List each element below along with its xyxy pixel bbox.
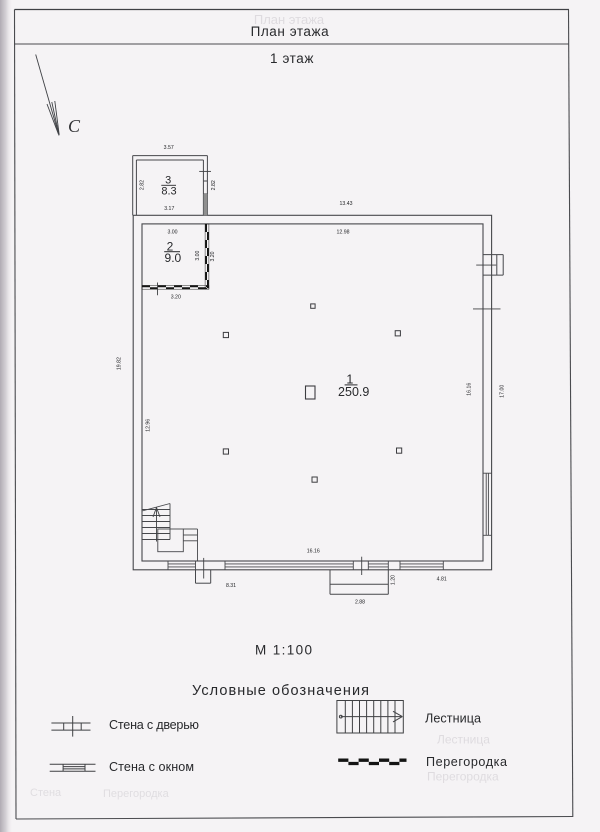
svg-text:Стена: Стена: [30, 787, 62, 799]
svg-text:2.88: 2.88: [355, 600, 365, 606]
svg-text:3.20: 3.20: [210, 251, 216, 261]
svg-text:Стена с окном: Стена с окном: [109, 760, 194, 774]
svg-text:Лестница: Лестница: [425, 711, 481, 725]
svg-text:250.9: 250.9: [338, 385, 369, 399]
svg-text:8.3: 8.3: [161, 186, 176, 198]
svg-text:9.0: 9.0: [165, 251, 182, 265]
svg-text:1 этаж: 1 этаж: [270, 51, 314, 66]
svg-text:Перегородка: Перегородка: [426, 755, 507, 769]
svg-text:3.00: 3.00: [167, 230, 177, 236]
svg-text:17.00: 17.00: [499, 385, 505, 398]
svg-text:3.20: 3.20: [171, 295, 181, 301]
svg-text:2.82: 2.82: [140, 180, 146, 190]
svg-text:3.17: 3.17: [164, 206, 174, 212]
svg-text:12.96: 12.96: [146, 419, 152, 432]
svg-text:Условные обозначения: Условные обозначения: [192, 683, 369, 699]
svg-text:3.57: 3.57: [164, 145, 174, 151]
svg-text:8.31: 8.31: [226, 583, 236, 589]
svg-text:16.16: 16.16: [307, 549, 320, 555]
svg-text:13.43: 13.43: [340, 201, 353, 207]
svg-text:Перегородка: Перегородка: [103, 788, 170, 800]
svg-text:С: С: [68, 116, 81, 136]
svg-text:1.20: 1.20: [390, 575, 396, 585]
svg-text:19.82: 19.82: [117, 357, 123, 370]
svg-text:4.81: 4.81: [437, 576, 447, 582]
svg-text:3.00: 3.00: [195, 250, 201, 260]
svg-text:12.98: 12.98: [337, 229, 350, 235]
svg-text:Перегородка: Перегородка: [427, 770, 499, 784]
svg-text:2.82: 2.82: [211, 180, 217, 190]
svg-text:Лестница: Лестница: [437, 733, 490, 747]
svg-text:16.16: 16.16: [467, 383, 473, 396]
svg-text:Стена с дверью: Стена с дверью: [109, 718, 199, 732]
svg-text:План этажа: План этажа: [251, 24, 329, 39]
